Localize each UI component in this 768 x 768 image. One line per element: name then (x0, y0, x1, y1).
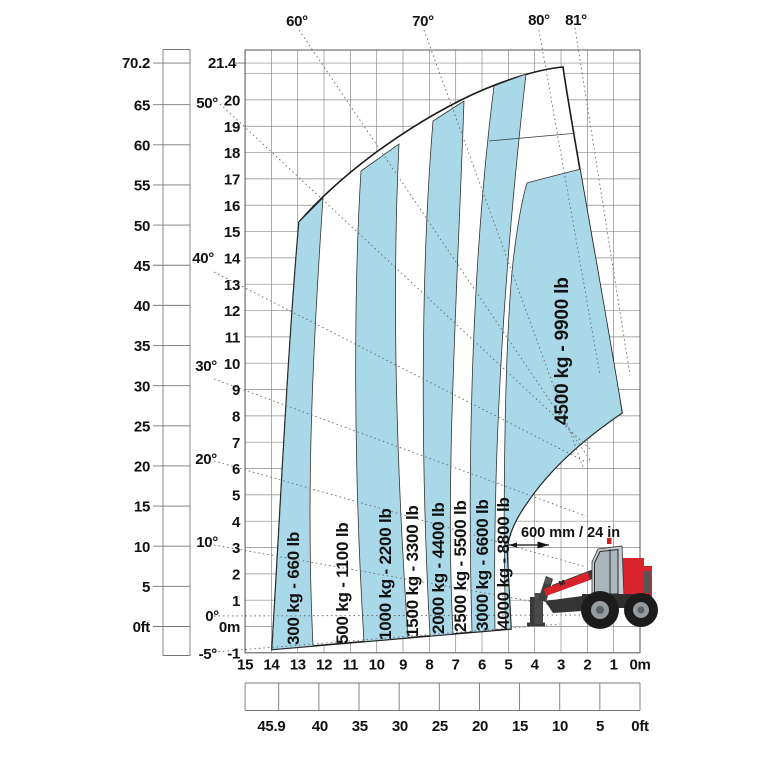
tick-label: 35 (134, 338, 150, 355)
tick-label: 13 (224, 277, 240, 294)
tick-label: 12 (224, 303, 240, 320)
tick-label: 45 (134, 258, 150, 275)
tick-label: 45.9 (257, 718, 285, 735)
zone-label: 4000 kg - 8800 lb (494, 497, 513, 629)
angle-label: 10° (196, 534, 218, 551)
tick-label: 4 (232, 514, 241, 531)
zone-label: 300 kg - 660 lb (284, 532, 303, 645)
load-chart: M 600 mm / 24 in 300 kg - 660 lb 500 kg … (0, 0, 768, 768)
zone-label: 3000 kg - 6600 lb (473, 499, 492, 631)
angle-label: 20° (195, 451, 217, 468)
tick-label: 60 (134, 138, 150, 155)
tick-label: 7 (232, 435, 240, 452)
tick-label: 15 (512, 718, 528, 735)
tick-label: 20 (224, 92, 240, 109)
tick-label: 25 (432, 718, 448, 735)
angle-label: 40° (192, 250, 214, 267)
tick-label: 21.4 (208, 55, 237, 72)
zone-label: 1500 kg - 3300 lb (403, 505, 422, 637)
tick-label: 0m (219, 619, 240, 636)
tick-label: 18 (224, 145, 240, 162)
angle-label: 30° (195, 358, 217, 375)
tick-label: 70.2 (122, 55, 150, 72)
tick-label: 14 (224, 250, 241, 267)
tick-label: 25 (134, 419, 150, 436)
tick-label: 4 (531, 657, 540, 674)
tick-label: 2 (583, 657, 591, 674)
tick-label: 50 (134, 218, 150, 235)
load-chart-page: { "chart_data": { "type": "area", "title… (0, 0, 768, 768)
tick-label: 10 (369, 657, 385, 674)
tick-label: 7 (452, 657, 460, 674)
zone-label: 4500 kg - 9900 lb (552, 277, 573, 425)
zone-label: 1000 kg - 2200 lb (376, 508, 395, 640)
tick-label: 14 (263, 657, 280, 674)
tick-label: 65 (134, 98, 150, 115)
tick-label: 3 (557, 657, 565, 674)
tick-label: 30 (134, 378, 150, 395)
tick-label: 55 (134, 178, 150, 195)
zone-label: 2000 kg - 4400 lb (429, 502, 448, 634)
angle-label: 50° (196, 95, 218, 112)
tick-label: 0ft (133, 619, 151, 636)
tick-label: 1 (610, 657, 618, 674)
angle-label: -5° (199, 646, 218, 663)
tick-label: 20 (472, 718, 488, 735)
tick-label: 10 (224, 356, 240, 373)
tick-label: 0ft (631, 718, 649, 735)
dimension-label: 600 mm / 24 in (521, 525, 620, 541)
tick-label: 15 (134, 499, 150, 516)
tick-label: 0m (629, 657, 650, 674)
angle-label: 80° (528, 12, 550, 29)
tick-label: 3 (232, 540, 240, 557)
tick-label: 10 (552, 718, 568, 735)
tick-label: 8 (232, 408, 240, 425)
tick-label: 5 (142, 579, 150, 596)
tick-label: 6 (478, 657, 486, 674)
tick-label: 5 (504, 657, 512, 674)
tick-label: 20 (134, 459, 150, 476)
tick-label: 13 (290, 657, 306, 674)
tick-label: 2 (232, 566, 240, 583)
tick-label: 16 (224, 198, 240, 215)
tick-label: 35 (352, 718, 368, 735)
y-axis-feet-labels: 70.2 65 60 55 50 45 40 35 30 25 20 15 10… (122, 55, 150, 636)
tick-label: 30 (392, 718, 408, 735)
x-axis-meters-labels: 15 14 13 12 11 10 9 8 7 6 5 4 3 2 1 0m (237, 657, 650, 674)
angle-label: 81° (565, 12, 587, 29)
fork-offset-annotation: 600 mm / 24 in (509, 525, 620, 549)
tick-label: 40 (312, 718, 328, 735)
tick-label: 19 (224, 119, 240, 136)
tick-label: 40 (134, 298, 150, 315)
x-axis-feet-labels: 45.9 40 35 30 25 20 15 10 5 0ft (257, 718, 649, 735)
tick-label: 15 (224, 224, 240, 241)
tick-label: 17 (224, 171, 240, 188)
tick-label: 1 (232, 593, 240, 610)
zone-label: 500 kg - 1100 lb (333, 522, 352, 644)
tick-label: 9 (232, 382, 240, 399)
tick-label: 5 (232, 487, 240, 504)
tick-label: 10 (134, 539, 150, 556)
tick-label: 9 (399, 657, 407, 674)
angle-label: 70° (412, 13, 434, 30)
zone-label: 2500 kg - 5500 lb (451, 500, 470, 632)
angle-label: 60° (286, 13, 308, 30)
machine-illustration: M (527, 538, 658, 629)
tick-label: 5 (596, 718, 604, 735)
tick-label: 11 (343, 657, 358, 674)
tick-label: 15 (237, 657, 253, 674)
tick-label: 11 (225, 329, 240, 346)
tick-label: 8 (425, 657, 433, 674)
tick-label: 12 (316, 657, 332, 674)
tick-label: 6 (232, 461, 240, 478)
angle-label: 0° (205, 608, 219, 625)
